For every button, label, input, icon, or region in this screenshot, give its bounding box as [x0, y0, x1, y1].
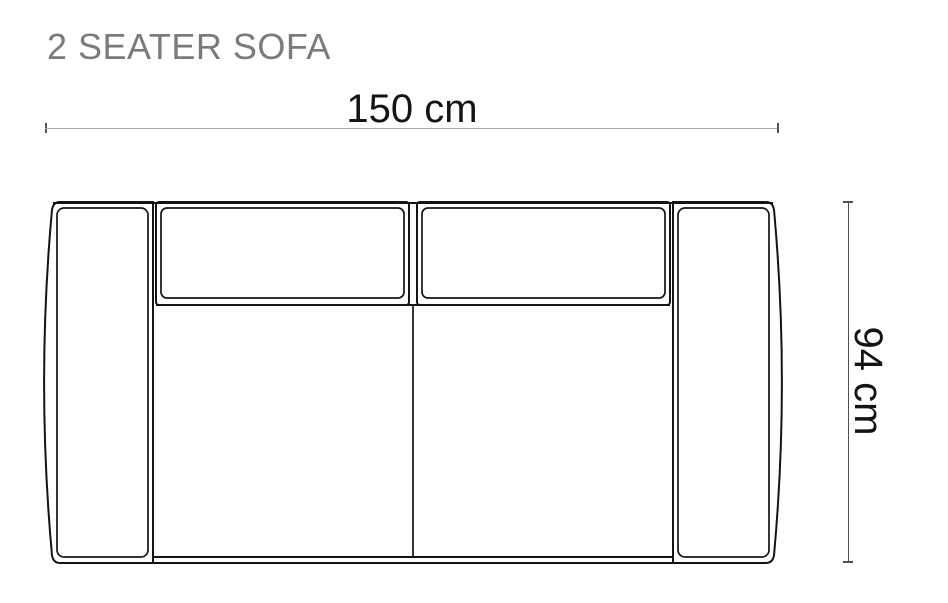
left-armrest-outline: [44, 202, 153, 563]
sofa-top-view-drawing: [0, 0, 948, 603]
right-armrest-pad: [678, 208, 769, 557]
left-armrest-pad: [57, 208, 148, 557]
right-back-cushion-pad: [422, 208, 665, 298]
furniture-dimension-diagram: 2 SEATER SOFA 150 cm 94 cm: [0, 0, 948, 603]
right-armrest-outline: [673, 202, 782, 563]
right-back-cushion-outline: [417, 202, 670, 305]
left-back-cushion-pad: [161, 208, 404, 298]
left-back-cushion-outline: [156, 202, 409, 305]
